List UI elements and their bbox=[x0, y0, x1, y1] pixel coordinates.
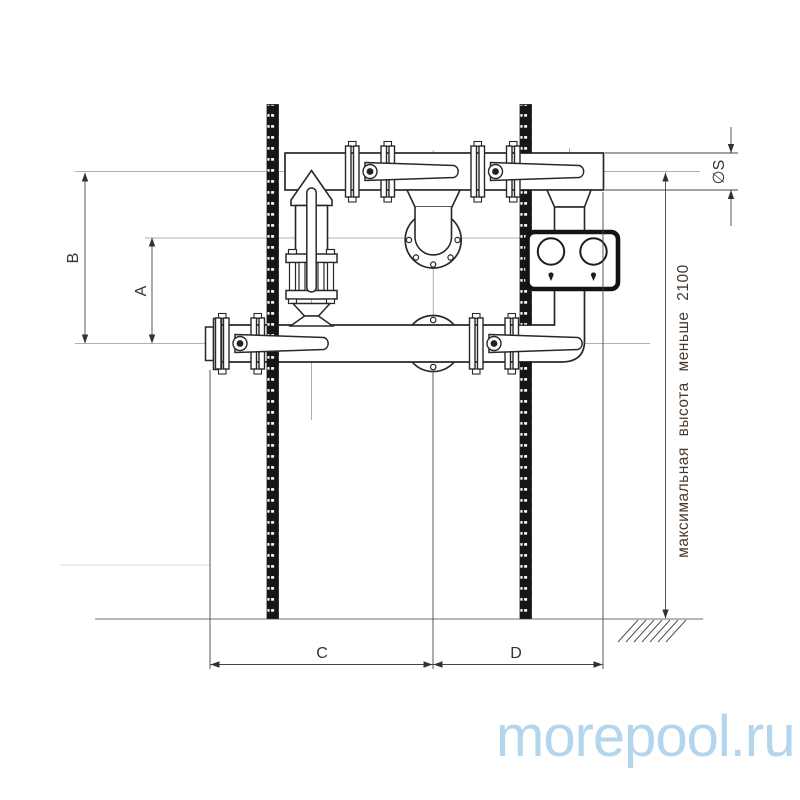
dimension-label-diameter-s: ∅S bbox=[711, 160, 728, 185]
dimension-label-c: C bbox=[316, 645, 328, 662]
gate-valve-lever bbox=[307, 188, 316, 292]
valve-lever bbox=[365, 163, 458, 181]
max-height-note: максимальная высота меньше 2100 bbox=[675, 264, 692, 558]
ground-hatching bbox=[618, 620, 686, 642]
dimension-lines bbox=[85, 127, 738, 669]
ground bbox=[95, 619, 703, 642]
center-suction-elbow bbox=[405, 190, 461, 268]
watermark-morepool: morepool.ru bbox=[496, 704, 794, 769]
left-support-post bbox=[267, 105, 279, 619]
dimension-label-b: B bbox=[65, 253, 82, 264]
gauge-panel bbox=[528, 232, 619, 289]
dimension-arrows bbox=[82, 144, 734, 668]
dimension-label-a: A bbox=[133, 285, 150, 296]
technical-drawing-page: B A C D ∅S максимальная высота меньше 21… bbox=[0, 0, 800, 800]
dimension-label-d: D bbox=[510, 645, 522, 662]
piping-diagram: B A C D ∅S максимальная высота меньше 21… bbox=[0, 0, 800, 800]
valve-lever bbox=[491, 163, 584, 181]
right-riser bbox=[547, 190, 591, 233]
gauge-dial-left bbox=[538, 238, 564, 264]
valve-lever bbox=[489, 335, 582, 353]
valve-lever bbox=[235, 335, 328, 353]
